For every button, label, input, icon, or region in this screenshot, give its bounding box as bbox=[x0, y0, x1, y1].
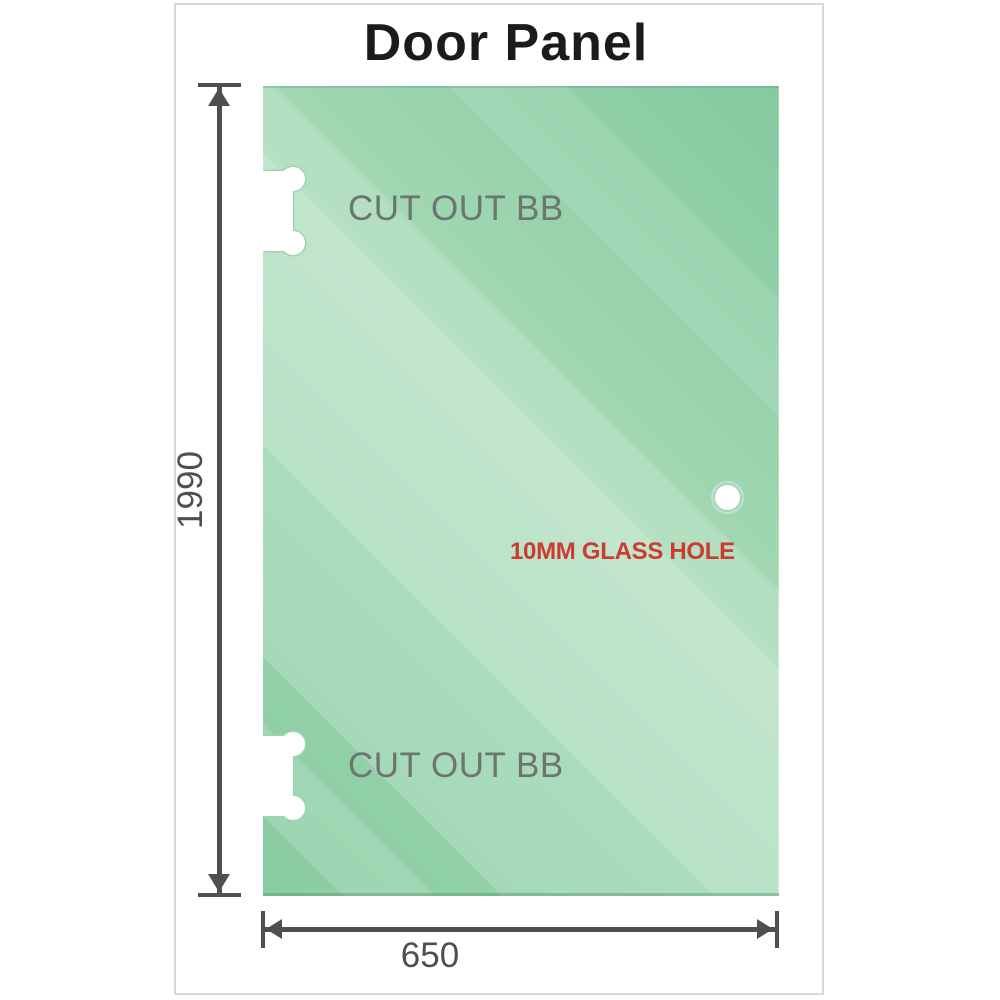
door-panel-diagram: Door Panel CUT OUT BB CUT OUT BB 10MM GL… bbox=[0, 0, 1000, 1000]
height-dim-line bbox=[217, 87, 222, 893]
width-dim-tick-right bbox=[775, 911, 779, 948]
arrow-down-icon bbox=[208, 874, 230, 892]
glass-hole-label: 10MM GLASS HOLE bbox=[510, 538, 715, 566]
arrow-up-icon bbox=[208, 88, 230, 106]
cutout-bottom-label: CUT OUT BB bbox=[348, 746, 564, 786]
glass-hole bbox=[713, 483, 742, 512]
width-dim-line bbox=[265, 927, 775, 932]
cutout-shape bbox=[256, 732, 305, 820]
arrow-right-icon bbox=[757, 919, 773, 939]
width-dimension-label: 650 bbox=[399, 936, 461, 976]
hinge-cutout-top bbox=[256, 165, 308, 257]
height-dim-cap-bottom bbox=[198, 893, 241, 897]
page-title: Door Panel bbox=[174, 13, 824, 73]
height-dimension-label: 1990 bbox=[173, 445, 209, 535]
cutout-shape bbox=[256, 167, 305, 255]
arrow-left-icon bbox=[266, 919, 282, 939]
cutout-top-label: CUT OUT BB bbox=[348, 189, 564, 229]
hinge-cutout-bottom bbox=[256, 730, 308, 822]
